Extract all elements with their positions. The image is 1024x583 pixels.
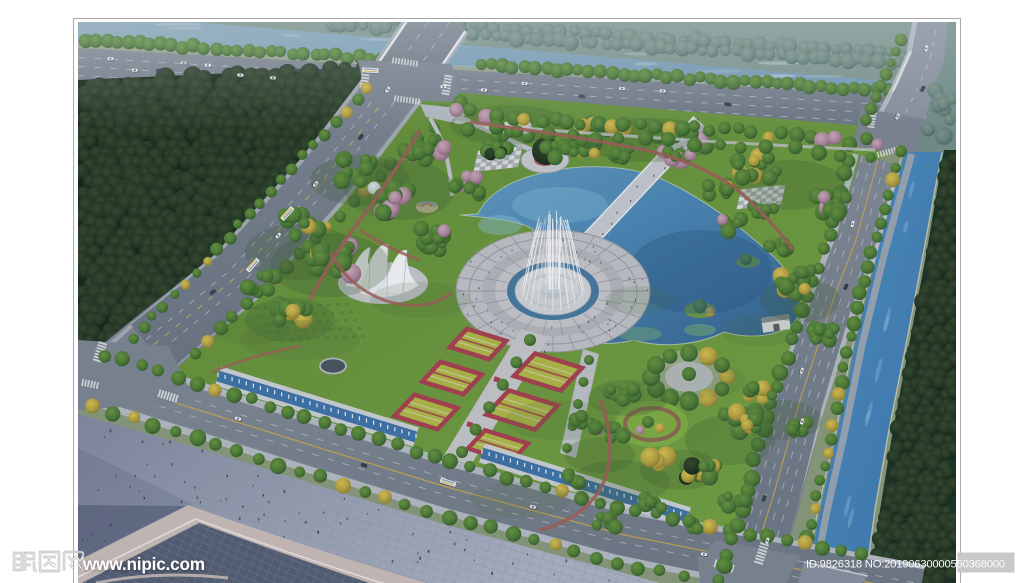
svg-text:ID:9826318 NO:2019063000055036: ID:9826318 NO:20190630000550368000 <box>806 559 1005 571</box>
svg-text:www.nipic.com: www.nipic.com <box>82 554 205 574</box>
